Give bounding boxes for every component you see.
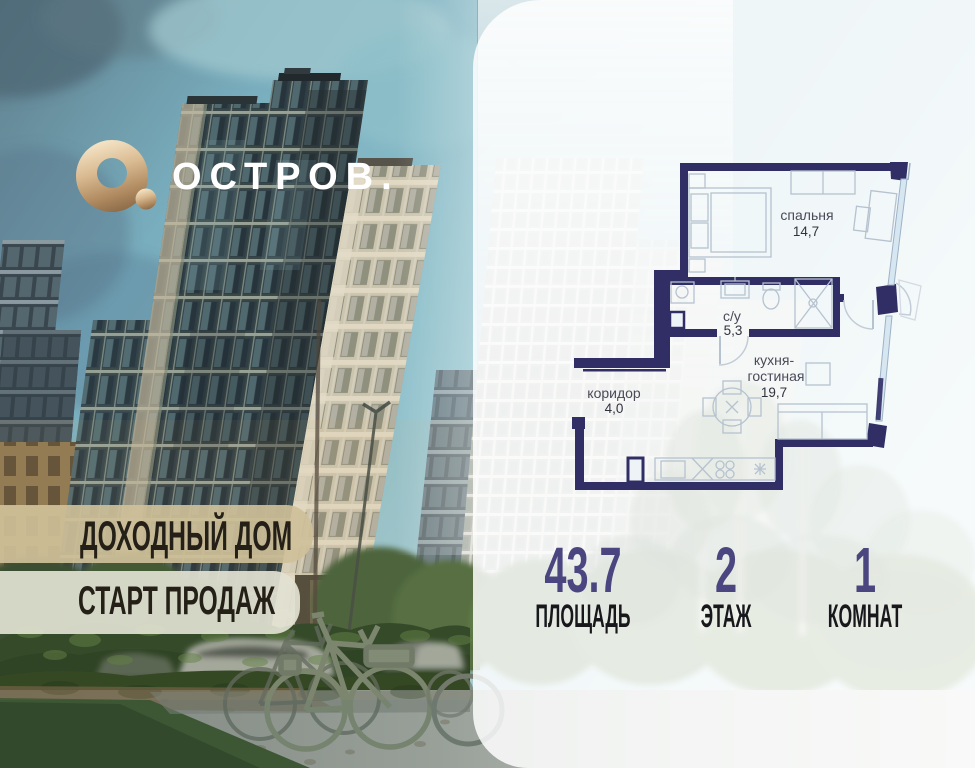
svg-text:спальня: спальня xyxy=(780,207,833,223)
svg-text:4,0: 4,0 xyxy=(605,401,624,416)
svg-text:5,3: 5,3 xyxy=(724,323,743,338)
svg-text:19,7: 19,7 xyxy=(761,385,787,400)
svg-text:кухня-: кухня- xyxy=(754,352,795,368)
svg-text:14,7: 14,7 xyxy=(793,224,819,239)
svg-text:с/у: с/у xyxy=(723,308,741,324)
svg-text:гостиная: гостиная xyxy=(748,368,805,384)
svg-text:коридор: коридор xyxy=(587,385,641,401)
